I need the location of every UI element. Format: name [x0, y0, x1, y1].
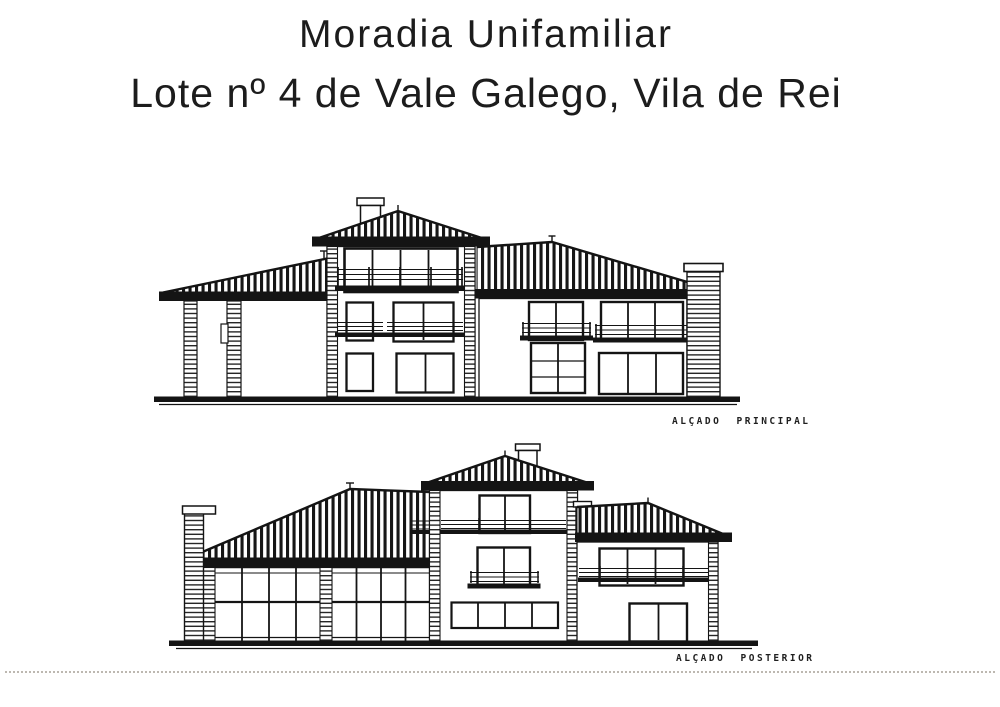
caption-alcado-principal: ALÇADO PRINCIPAL [672, 416, 811, 427]
tower-chimney-cap [357, 198, 384, 206]
tower-chimney-cap [516, 444, 541, 451]
drawing-sheet: Moradia Unifamiliar Lote nº 4 de Vale Ga… [0, 0, 1000, 707]
tower [410, 444, 594, 643]
principal-elevation-drawing [148, 188, 752, 438]
caption-alcado-posterior: ALÇADO POSTERIOR [676, 653, 815, 664]
ground-line [169, 641, 758, 649]
tower [312, 198, 490, 398]
ground-line [154, 397, 740, 405]
left-wing [184, 483, 443, 643]
page-title: Moradia Unifamiliar [0, 13, 972, 57]
right-chimney [687, 270, 720, 398]
page-subtitle: Lote nº 4 de Vale Galego, Vila de Rei [0, 70, 972, 117]
right-wing [574, 498, 733, 644]
porch [159, 251, 328, 398]
posterior-elevation-drawing [150, 432, 782, 674]
dotted-separator-line [5, 671, 995, 673]
right-wing [475, 236, 723, 398]
